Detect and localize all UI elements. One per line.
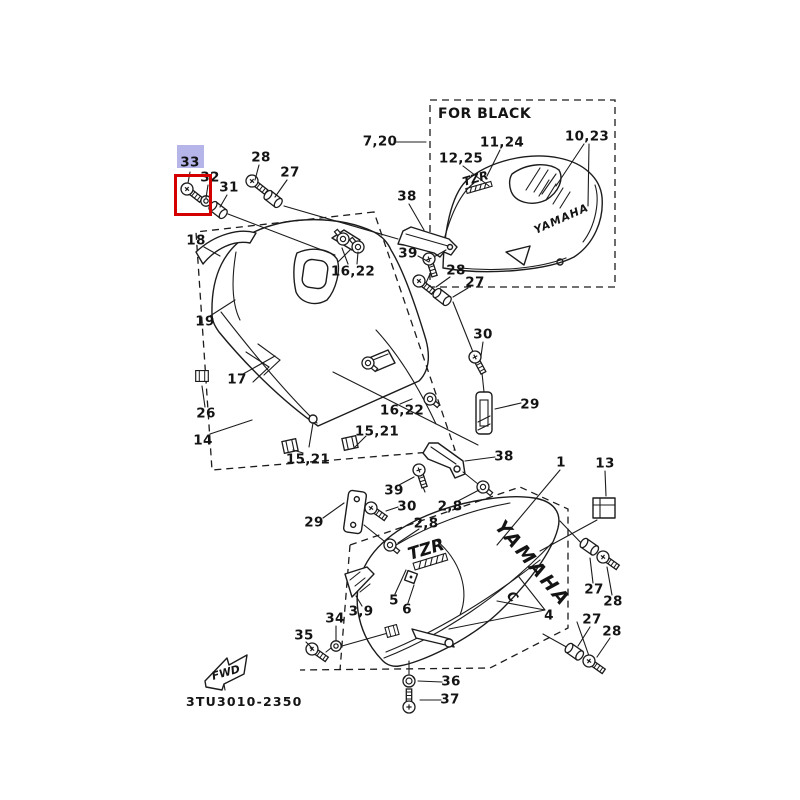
part-label-30[interactable]: 30 <box>397 500 416 514</box>
part-label-11-24[interactable]: 11,24 <box>480 136 524 150</box>
part-label-33[interactable]: 33 <box>180 156 199 170</box>
part-label-31[interactable]: 31 <box>219 181 238 195</box>
part-label-28[interactable]: 28 <box>603 595 622 609</box>
part-label-29[interactable]: 29 <box>520 398 539 412</box>
part-label-2-8[interactable]: 2,8 <box>438 500 463 514</box>
part-label-5[interactable]: 5 <box>389 594 399 608</box>
part-label-3-9[interactable]: 3,9 <box>349 605 374 619</box>
part-label-27[interactable]: 27 <box>465 276 484 290</box>
part-label-6[interactable]: 6 <box>402 603 412 617</box>
part-label-17[interactable]: 17 <box>227 373 246 387</box>
part-label-29[interactable]: 29 <box>304 516 323 530</box>
part-label-15-21[interactable]: 15,21 <box>286 453 330 467</box>
part-label-18[interactable]: 18 <box>186 234 205 248</box>
part-label-16-22[interactable]: 16,22 <box>331 265 375 279</box>
part-label-27[interactable]: 27 <box>582 613 601 627</box>
selection-box <box>174 174 212 216</box>
part-label-37[interactable]: 37 <box>440 693 459 707</box>
part-label-15-21[interactable]: 15,21 <box>355 425 399 439</box>
part-label-1[interactable]: 1 <box>556 456 566 470</box>
part-label-28[interactable]: 28 <box>602 625 621 639</box>
part-label-13[interactable]: 13 <box>595 457 614 471</box>
part-label-10-23[interactable]: 10,23 <box>565 130 609 144</box>
part-label-26[interactable]: 26 <box>196 407 215 421</box>
labels-layer: 3332312827181917261416,2216,2215,2115,21… <box>0 0 800 800</box>
part-label-36[interactable]: 36 <box>441 675 460 689</box>
part-label-38[interactable]: 38 <box>494 450 513 464</box>
part-label-39[interactable]: 39 <box>384 484 403 498</box>
part-label-12-25[interactable]: 12,25 <box>439 152 483 166</box>
part-label-39[interactable]: 39 <box>398 247 417 261</box>
part-label-16-22[interactable]: 16,22 <box>380 404 424 418</box>
part-label-34[interactable]: 34 <box>325 612 344 626</box>
part-label-4[interactable]: 4 <box>544 609 554 623</box>
part-label-2-8[interactable]: 2,8 <box>414 517 439 531</box>
parts-diagram: TZR YAMAHA TZR YAMAHA C <box>0 0 800 800</box>
part-label-27[interactable]: 27 <box>584 583 603 597</box>
part-label-35[interactable]: 35 <box>294 629 313 643</box>
part-label-38[interactable]: 38 <box>397 190 416 204</box>
part-label-19[interactable]: 19 <box>195 315 214 329</box>
part-label-14[interactable]: 14 <box>193 434 212 448</box>
part-label-7-20[interactable]: 7,20 <box>363 135 398 149</box>
part-label-28[interactable]: 28 <box>446 264 465 278</box>
part-label-30[interactable]: 30 <box>473 328 492 342</box>
part-label-28[interactable]: 28 <box>251 151 270 165</box>
part-label-27[interactable]: 27 <box>280 166 299 180</box>
